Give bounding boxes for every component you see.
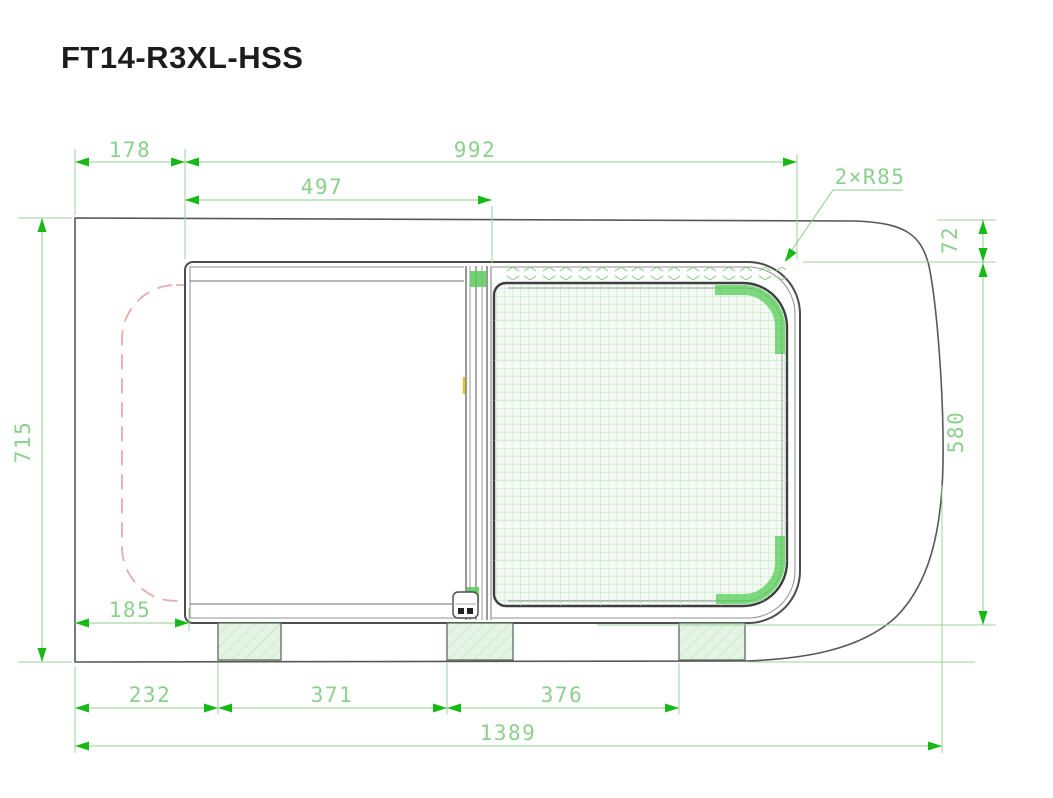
- mounting-bracket-3: [679, 623, 745, 660]
- dim-497-label: 497: [301, 175, 343, 199]
- dim-178-label: 178: [109, 138, 151, 162]
- mesh-zigzag-strip: [500, 267, 786, 280]
- latch-screw-left: [458, 608, 464, 614]
- dim-371-label: 371: [311, 683, 353, 707]
- dim-232-label: 232: [129, 683, 171, 707]
- dim-992-label: 992: [454, 138, 496, 162]
- drawing-canvas: FT14-R3XL-HSS: [0, 0, 1053, 798]
- dim-715-label: 715: [11, 421, 35, 463]
- technical-drawing: 178 992 497 2×R85 72 580 715 185 232 371…: [0, 0, 1053, 798]
- dim-376-label: 376: [541, 683, 583, 707]
- corner-seal-top-left: [470, 271, 486, 287]
- latch: [453, 592, 478, 618]
- dim-185-label: 185: [109, 598, 151, 622]
- dim-72-label: 72: [938, 226, 962, 254]
- dim-1389-label: 1389: [480, 721, 537, 745]
- divider-bar: [464, 265, 492, 620]
- dim-580-label: 580: [944, 411, 968, 453]
- mounting-brackets: [218, 623, 745, 660]
- mesh-grid-overlay: [494, 283, 787, 606]
- radius-note-label: 2×R85: [835, 165, 906, 189]
- mesh-pane: [494, 267, 787, 606]
- latch-screw-right: [467, 608, 473, 614]
- mounting-bracket-2: [447, 623, 513, 660]
- mounting-bracket-1: [218, 623, 281, 660]
